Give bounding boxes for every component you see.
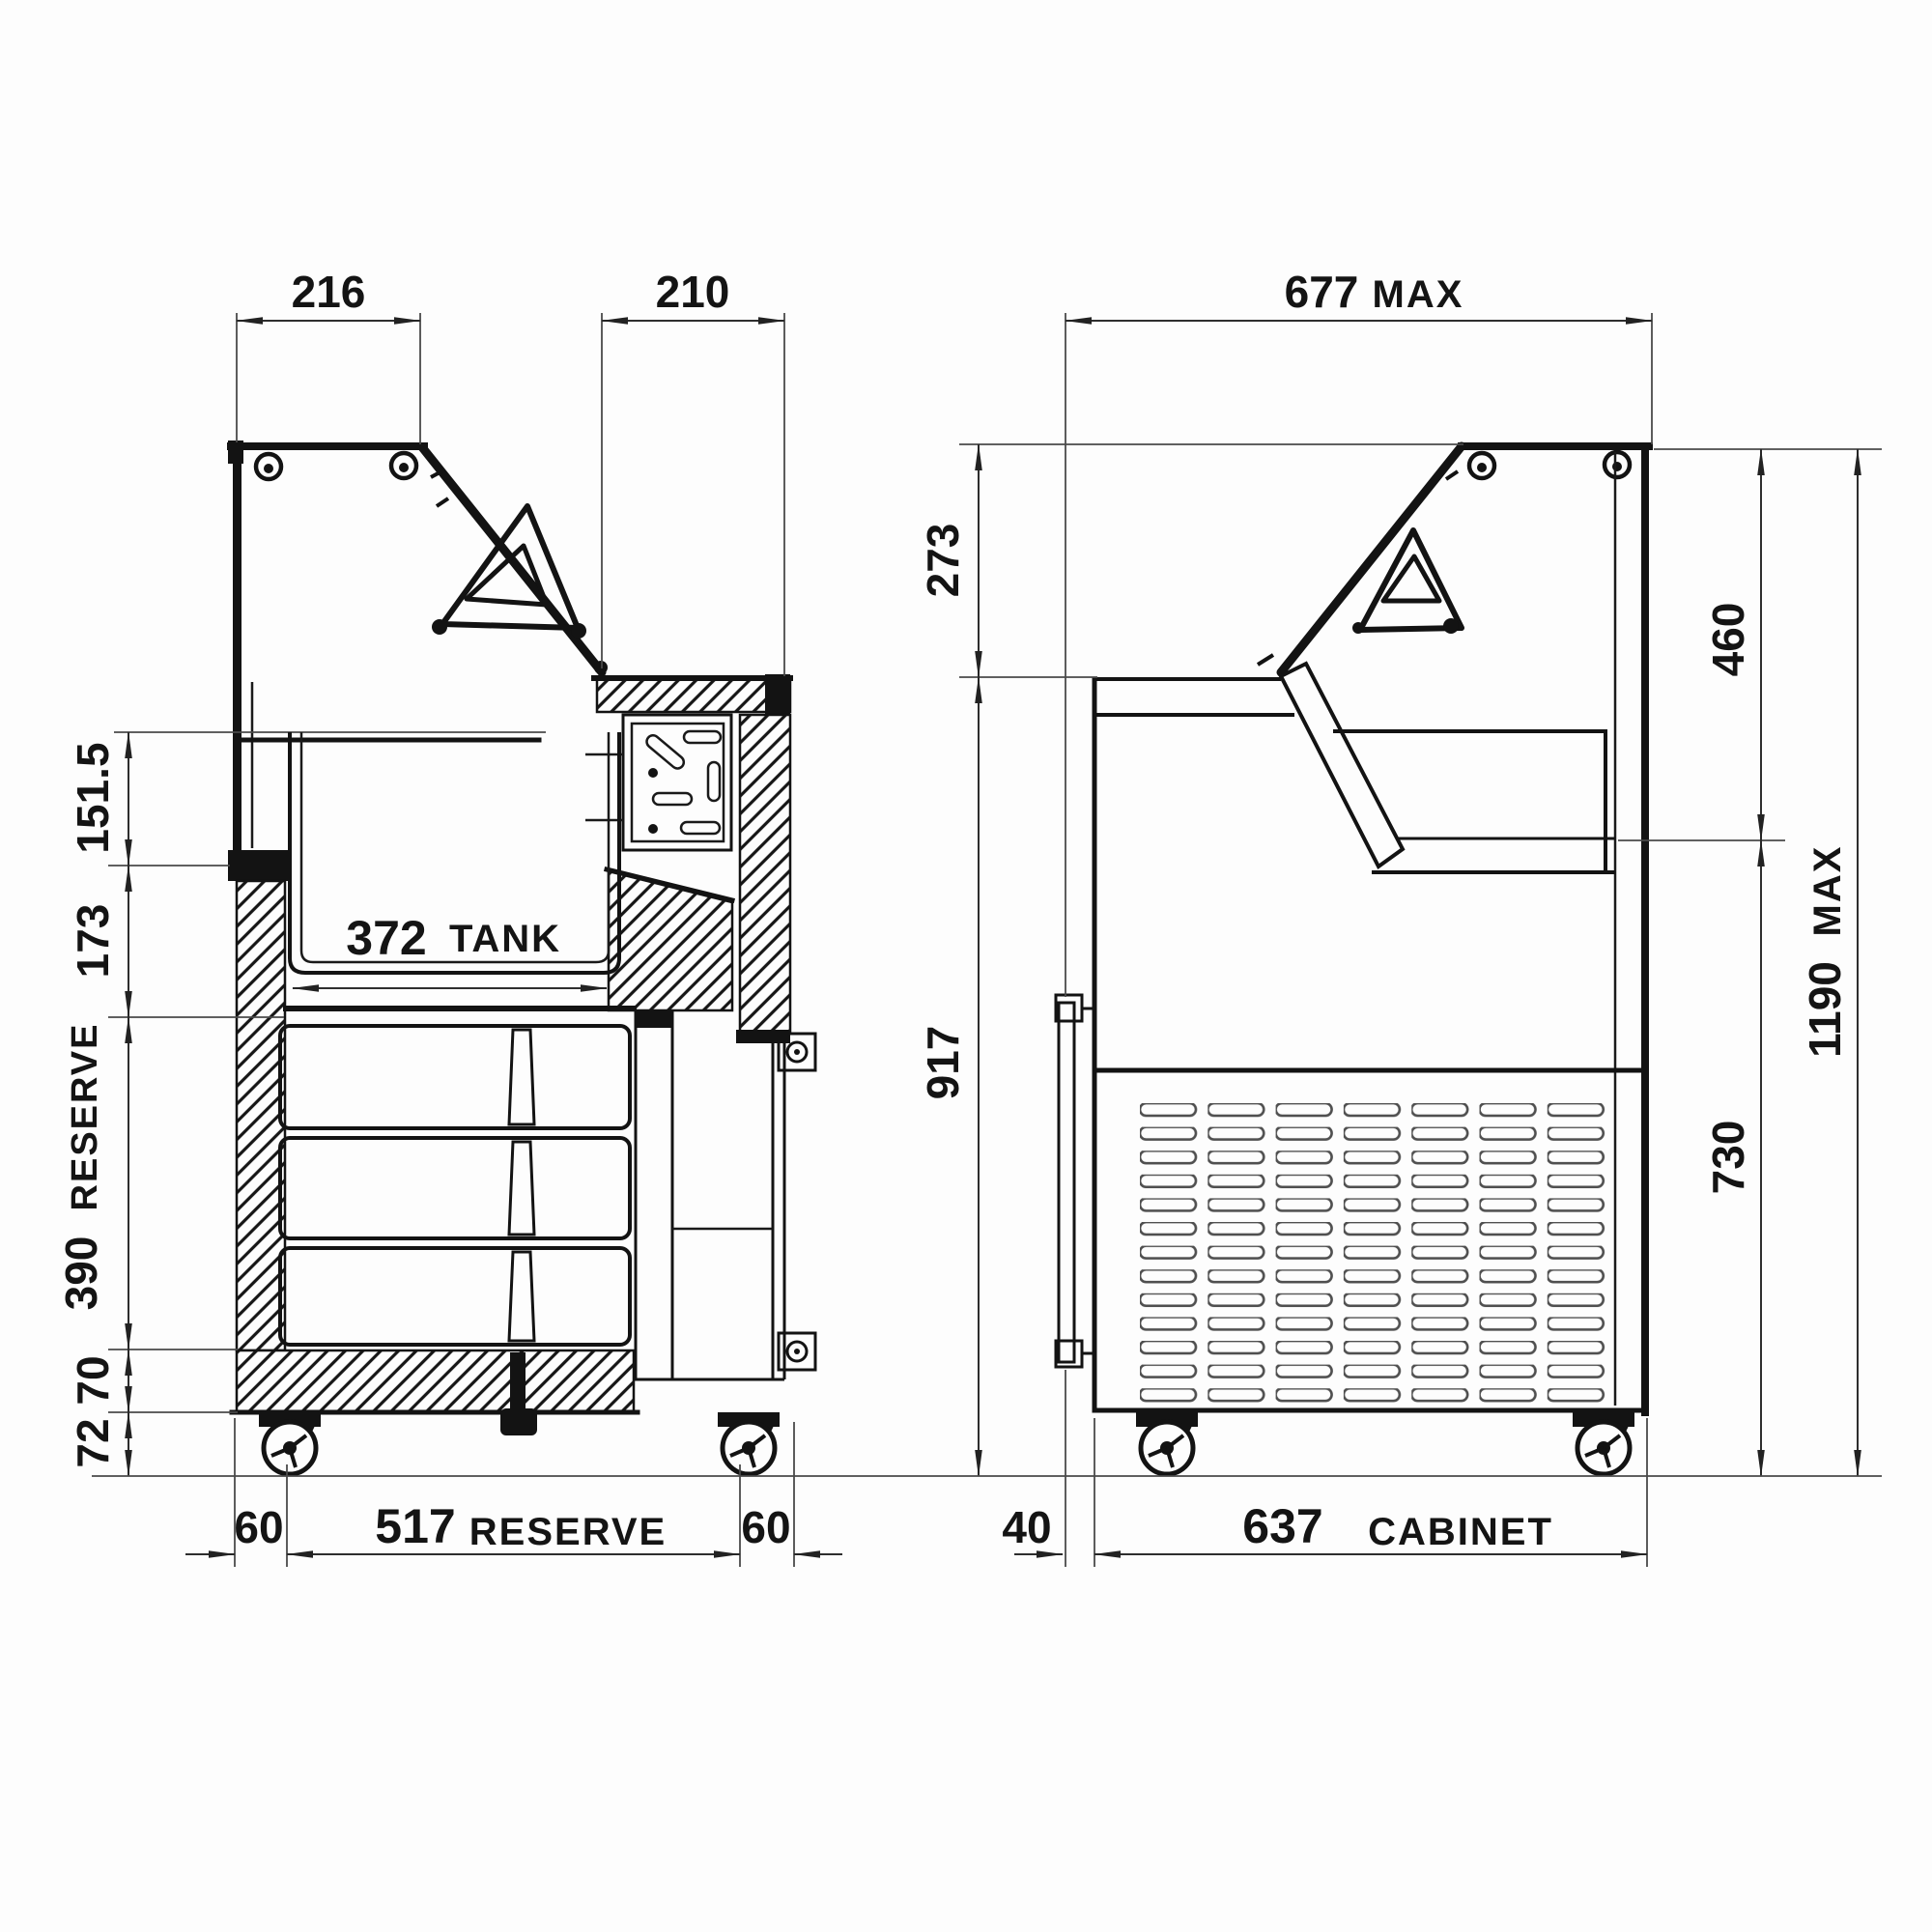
dim-word-max-right: MAX xyxy=(1806,845,1849,937)
glass-seal-tick xyxy=(437,498,448,506)
dim-677: 677 xyxy=(1285,267,1359,317)
bin-2-divider xyxy=(509,1142,534,1235)
worktop-rear-cap xyxy=(765,674,790,717)
insulated-front-wall xyxy=(237,881,285,1350)
rear-wall-bottom-cap xyxy=(736,1030,790,1043)
dim-372: 372 xyxy=(346,911,426,965)
bin-2 xyxy=(280,1138,630,1238)
dim-637: 637 xyxy=(1242,1499,1322,1553)
dim-40: 40 xyxy=(1002,1502,1051,1552)
insulated-rear-wall xyxy=(740,715,790,1032)
insulated-base xyxy=(237,1350,634,1412)
glass-seal-tick xyxy=(1446,471,1458,479)
dim-517: 517 xyxy=(375,1499,455,1553)
technical-drawing-page: 216 210 151.5 173 RESERVE 390 70 72 372 … xyxy=(0,0,1932,1932)
screw-dot xyxy=(648,768,658,778)
dim-273: 273 xyxy=(918,524,968,598)
worktop xyxy=(597,678,790,712)
dim-390: 390 xyxy=(56,1236,106,1311)
screw-dot xyxy=(648,824,658,834)
glass-handle-bracket xyxy=(1352,530,1462,634)
dim-word-tank: TANK xyxy=(449,918,561,960)
glass-support xyxy=(1281,664,1403,867)
dim-word-cabinet: CABINET xyxy=(1368,1511,1553,1553)
vent-slot xyxy=(653,793,692,805)
vent-slot xyxy=(708,762,720,801)
vent-slot xyxy=(681,822,720,834)
reserve-bins xyxy=(280,1026,630,1345)
front-glass xyxy=(233,446,241,852)
dim-word-reserve-bottom: RESERVE xyxy=(469,1511,667,1553)
drain-pipe xyxy=(510,1352,526,1412)
control-panel xyxy=(585,715,731,850)
bin-3 xyxy=(280,1248,630,1345)
dim-1190: 1190 xyxy=(1800,961,1850,1058)
dim-730: 730 xyxy=(1703,1121,1753,1195)
vent-slot xyxy=(684,731,721,743)
dim-151-5: 151.5 xyxy=(68,742,118,853)
dim-word-max-top: MAX xyxy=(1373,273,1464,316)
dim-210: 210 xyxy=(656,267,730,317)
dim-70: 70 xyxy=(68,1355,118,1405)
glass-bottom-frame xyxy=(228,850,290,881)
dim-72: 72 xyxy=(68,1418,118,1467)
bin-1-divider xyxy=(509,1030,534,1124)
dim-word-reserve: RESERVE xyxy=(65,1023,105,1211)
ventilation-grille xyxy=(1136,1099,1611,1406)
sloped-glass xyxy=(1281,446,1462,672)
bin-3-divider xyxy=(509,1252,534,1341)
glass-seal-tick xyxy=(1258,655,1273,665)
drain-foot xyxy=(500,1408,537,1435)
bin-1 xyxy=(280,1026,630,1128)
glass-pivot xyxy=(594,661,608,674)
freezer-cabinet-drawing: 216 210 151.5 173 RESERVE 390 70 72 372 … xyxy=(0,0,1932,1932)
handle-bar xyxy=(1056,995,1094,1367)
dim-460: 460 xyxy=(1703,603,1753,677)
dim-216: 216 xyxy=(292,267,366,317)
dim-917: 917 xyxy=(918,1026,968,1100)
reserve-door xyxy=(636,1012,815,1379)
dim-60-left: 60 xyxy=(234,1502,283,1552)
insulation-wedge xyxy=(609,871,732,1010)
vent-slot xyxy=(644,733,687,772)
dim-60-right: 60 xyxy=(741,1502,790,1552)
right-view-front-section xyxy=(1056,446,1649,1474)
dim-173: 173 xyxy=(68,904,118,979)
